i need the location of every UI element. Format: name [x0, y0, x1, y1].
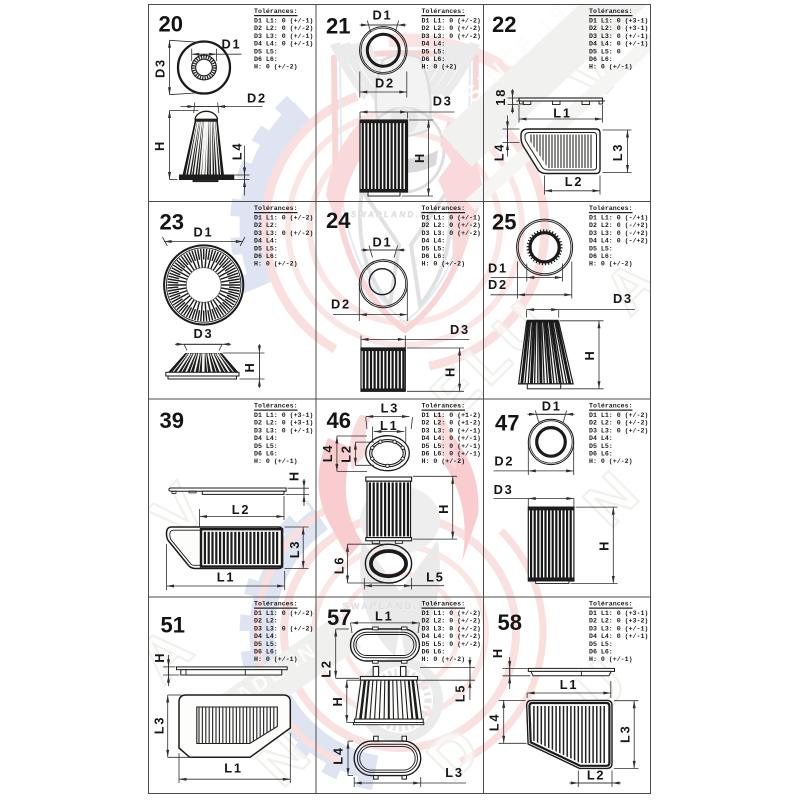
svg-text:D3 L3: 0 (+/-2): D3 L3: 0 (+/-2): [589, 427, 648, 434]
svg-text:D3 L3: 0 (+/-2): D3 L3: 0 (+/-2): [254, 230, 313, 237]
svg-text:D1 L1: 0 (+/-2): D1 L1: 0 (+/-2): [422, 18, 481, 25]
svg-text:D3 L3: 0 (+/-2): D3 L3: 0 (+/-2): [422, 33, 481, 40]
svg-text:D5 L5:: D5 L5:: [254, 443, 278, 450]
svg-text:D5 L5:: D5 L5:: [254, 641, 278, 648]
svg-text:L3: L3: [610, 143, 625, 162]
svg-text:L1: L1: [217, 570, 236, 585]
svg-text:58: 58: [498, 610, 522, 635]
svg-text:L2: L2: [565, 174, 584, 189]
svg-text:Tolérances:: Tolérances:: [589, 403, 633, 410]
svg-text:Tolérances:: Tolérances:: [422, 601, 466, 608]
svg-text:D3 L3: 0 (+/-1): D3 L3: 0 (+/-1): [254, 427, 313, 434]
svg-text:L4: L4: [486, 713, 501, 732]
svg-text:D2 L2: 0 (+3-1): D2 L2: 0 (+3-1): [254, 420, 313, 427]
svg-text:D3: D3: [194, 326, 214, 341]
svg-text:47: 47: [495, 411, 519, 436]
svg-text:D3: D3: [494, 482, 514, 497]
svg-text:D3: D3: [433, 94, 453, 109]
svg-text:L3: L3: [152, 716, 167, 735]
svg-text:Tolérances:: Tolérances:: [254, 8, 298, 15]
svg-text:D5 L5:: D5 L5:: [589, 641, 613, 648]
svg-text:D3 L3: 0 (+/-1): D3 L3: 0 (+/-1): [422, 427, 481, 434]
svg-text:D2: D2: [375, 76, 395, 91]
svg-text:D3 L3: 0 (+/-1): D3 L3: 0 (+/-1): [589, 625, 648, 632]
svg-text:L3: L3: [287, 540, 302, 559]
svg-text:H: 0 (+/-2): H: 0 (+/-2): [422, 261, 466, 268]
svg-text:D4 L4: 0 (+/-2): D4 L4: 0 (+/-2): [422, 633, 481, 640]
svg-text:Tolérances:: Tolérances:: [254, 205, 298, 212]
svg-text:L6: L6: [331, 556, 346, 575]
svg-text:D1 L1: 0 (+3-1): D1 L1: 0 (+3-1): [589, 610, 648, 617]
svg-text:D6 L6:: D6 L6:: [254, 451, 278, 458]
svg-text:L5: L5: [453, 684, 468, 703]
svg-text:H: 0 (+/-2): H: 0 (+/-2): [589, 261, 633, 268]
svg-text:D1: D1: [542, 399, 562, 414]
svg-text:Tolérances:: Tolérances:: [254, 403, 298, 410]
svg-text:D1 L1: 0 (+1-2): D1 L1: 0 (+1-2): [422, 412, 481, 419]
svg-text:D1 L1: 0 (+/-2): D1 L1: 0 (+/-2): [589, 412, 648, 419]
svg-text:H: H: [597, 540, 612, 551]
svg-text:L4: L4: [492, 143, 507, 162]
svg-text:H: H: [152, 652, 167, 663]
svg-text:L1: L1: [553, 106, 572, 121]
svg-text:D5 L5:: D5 L5:: [422, 245, 446, 252]
svg-text:22: 22: [492, 12, 516, 37]
svg-text:L2: L2: [587, 768, 606, 783]
svg-text:L1: L1: [560, 677, 579, 692]
svg-text:D6 L6:: D6 L6:: [422, 56, 446, 63]
svg-text:D3 L3: 0 (-/+2): D3 L3: 0 (-/+2): [589, 230, 648, 237]
svg-text:H: 0 (+2): H: 0 (+2): [422, 64, 458, 71]
svg-text:L4: L4: [230, 142, 245, 161]
svg-text:20: 20: [159, 12, 183, 37]
svg-text:H: 0 (+/-2): H: 0 (+/-2): [422, 458, 466, 465]
svg-text:D1: D1: [373, 8, 393, 23]
svg-text:D6 L6:: D6 L6:: [589, 451, 613, 458]
svg-text:L1: L1: [375, 609, 394, 624]
svg-text:D2 L2: 0 (+3-1): D2 L2: 0 (+3-1): [589, 25, 648, 32]
svg-text:H: 0 (+/-2): H: 0 (+/-2): [254, 64, 298, 71]
svg-text:Tolérances:: Tolérances:: [589, 205, 633, 212]
svg-text:D1 L1: 0 (+/-1): D1 L1: 0 (+/-1): [422, 215, 481, 222]
svg-text:24: 24: [326, 208, 351, 233]
svg-text:D4 L4: 0 (+/-1): D4 L4: 0 (+/-1): [589, 633, 648, 640]
svg-text:D2 L2: 0 (+/-2): D2 L2: 0 (+/-2): [422, 618, 481, 625]
svg-text:D5 L5:: D5 L5:: [254, 48, 278, 55]
svg-text:D2 L2: 0 (+3-2): D2 L2: 0 (+3-2): [589, 618, 648, 625]
svg-text:D2 L2: 0 (+/-2): D2 L2: 0 (+/-2): [254, 25, 313, 32]
svg-text:D4 L4: 0 (+/-1): D4 L4: 0 (+/-1): [422, 435, 481, 442]
svg-text:D1 L1: 0 (+3-1): D1 L1: 0 (+3-1): [254, 412, 313, 419]
svg-text:Tolérances:: Tolérances:: [254, 601, 298, 608]
svg-text:21: 21: [326, 14, 350, 39]
svg-text:D4 L4:: D4 L4:: [254, 435, 278, 442]
svg-text:D1 L1: 0 (-/+1): D1 L1: 0 (-/+1): [589, 215, 648, 222]
svg-text:L4: L4: [320, 444, 335, 463]
svg-text:D4 L4: 0 (+/-1): D4 L4: 0 (+/-1): [254, 41, 313, 48]
svg-text:D3 L3: 0 (+/-2): D3 L3: 0 (+/-2): [422, 625, 481, 632]
svg-text:Tolérances:: Tolérances:: [422, 8, 466, 15]
svg-text:D4 L4:: D4 L4:: [589, 435, 613, 442]
svg-text:L1: L1: [380, 418, 399, 433]
svg-text:D4 L4:: D4 L4:: [422, 41, 446, 48]
svg-text:L1: L1: [224, 761, 243, 776]
svg-text:D6 L6:: D6 L6:: [254, 56, 278, 63]
svg-text:D5 L5: 0 (+/-2): D5 L5: 0 (+/-2): [422, 641, 481, 648]
svg-text:Tolérances:: Tolérances:: [422, 403, 466, 410]
svg-text:D3: D3: [613, 291, 633, 306]
svg-text:D1 L1: 0 (+/-2): D1 L1: 0 (+/-2): [254, 215, 313, 222]
svg-text:D1: D1: [194, 225, 214, 240]
svg-text:D4 L4:: D4 L4:: [254, 633, 278, 640]
svg-text:D6 L6:: D6 L6:: [422, 649, 446, 656]
svg-text:D5 L5:: D5 L5:: [254, 245, 278, 252]
svg-text:H: 0 (+/-2): H: 0 (+/-2): [254, 261, 298, 268]
svg-text:18: 18: [493, 88, 508, 106]
svg-text:L3: L3: [381, 401, 400, 416]
svg-text:D2: D2: [331, 297, 351, 312]
svg-text:H: 0 (+/-2): H: 0 (+/-2): [589, 458, 633, 465]
svg-text:D3: D3: [450, 322, 470, 337]
svg-text:D2: D2: [247, 91, 267, 106]
svg-text:H: H: [443, 366, 458, 377]
svg-text:H: H: [412, 152, 427, 163]
svg-text:D4 L4: 0 (-/+2): D4 L4: 0 (-/+2): [589, 238, 648, 245]
svg-text:D5 L5: 0: D5 L5: 0: [589, 48, 621, 55]
svg-text:H: H: [242, 361, 257, 372]
svg-text:D2: D2: [494, 454, 514, 469]
svg-text:D4 L4:: D4 L4:: [422, 238, 446, 245]
svg-text:L3: L3: [618, 724, 633, 743]
svg-text:H: H: [490, 647, 505, 658]
svg-text:D4 L4: 0 (+/-1): D4 L4: 0 (+/-1): [589, 41, 648, 48]
svg-text:L3: L3: [445, 765, 464, 780]
svg-text:D5 L5:: D5 L5:: [589, 245, 613, 252]
svg-text:H: 0 (+/-1): H: 0 (+/-1): [589, 656, 633, 663]
svg-text:D3 L3: 0 (+/-1): D3 L3: 0 (+/-1): [254, 33, 313, 40]
svg-text:H: 0 (+/-1): H: 0 (+/-1): [589, 64, 633, 71]
svg-text:D6 L6:: D6 L6:: [422, 253, 446, 260]
svg-text:D2 L2: 0 (+/-2): D2 L2: 0 (+/-2): [422, 222, 481, 229]
svg-text:H: H: [287, 470, 302, 481]
svg-text:H: H: [582, 349, 597, 360]
svg-text:L2: L2: [318, 659, 333, 678]
svg-text:23: 23: [160, 210, 184, 235]
svg-text:D1: D1: [488, 261, 508, 276]
svg-text:H: 0 (+/-2): H: 0 (+/-2): [422, 656, 466, 663]
svg-text:D3 L3: 0 (+/-1): D3 L3: 0 (+/-1): [589, 33, 648, 40]
svg-text:46: 46: [327, 408, 351, 433]
svg-text:D3 L3: 0 (+/-2): D3 L3: 0 (+/-2): [422, 230, 481, 237]
svg-text:D2 L2:: D2 L2:: [254, 222, 278, 229]
svg-text:D2 L2: 0 (+/-2): D2 L2: 0 (+/-2): [422, 25, 481, 32]
svg-text:H: H: [330, 695, 345, 706]
svg-text:D2 L2: 0 (+1-2): D2 L2: 0 (+1-2): [422, 420, 481, 427]
svg-text:D2 L2: 0 (-/+2): D2 L2: 0 (-/+2): [589, 222, 648, 229]
svg-text:D2: D2: [488, 277, 508, 292]
svg-text:39: 39: [160, 408, 184, 433]
svg-text:L5: L5: [426, 569, 445, 584]
svg-text:H: 0 (+/-1): H: 0 (+/-1): [254, 656, 298, 663]
svg-text:H: H: [436, 503, 451, 514]
svg-text:D2 L2:: D2 L2:: [254, 618, 278, 625]
svg-text:Tolérances:: Tolérances:: [589, 601, 633, 608]
svg-text:D4 L4:: D4 L4:: [254, 238, 278, 245]
svg-text:D5 L5: 0 (+/-1): D5 L5: 0 (+/-1): [422, 443, 481, 450]
svg-text:D1 L1: 0 (+/-1): D1 L1: 0 (+/-1): [254, 18, 313, 25]
svg-text:D6 L6:: D6 L6:: [589, 253, 613, 260]
svg-text:D1 L1: 0 (+/-2): D1 L1: 0 (+/-2): [254, 610, 313, 617]
svg-text:Tolérances:: Tolérances:: [589, 8, 633, 15]
svg-text:H: 0 (+/-1): H: 0 (+/-1): [254, 458, 298, 465]
svg-text:D6 L6:: D6 L6:: [589, 56, 613, 63]
svg-text:D1: D1: [373, 235, 393, 250]
svg-text:L4: L4: [331, 746, 346, 765]
svg-text:D5 L5:: D5 L5:: [422, 48, 446, 55]
svg-text:D6 L6:: D6 L6:: [254, 253, 278, 260]
svg-text:D6 L6:: D6 L6:: [254, 649, 278, 656]
svg-text:Tolérances:: Tolérances:: [422, 205, 466, 212]
svg-text:D6 L6: 0 (+/-1): D6 L6: 0 (+/-1): [422, 451, 481, 458]
svg-text:57: 57: [327, 605, 351, 630]
svg-text:D2 L2: 0 (+/-2): D2 L2: 0 (+/-2): [589, 420, 648, 427]
svg-text:D1 L1: 0 (+/-2): D1 L1: 0 (+/-2): [422, 610, 481, 617]
svg-text:L2: L2: [339, 444, 354, 463]
svg-text:L2: L2: [232, 502, 251, 517]
svg-text:D6 L6:: D6 L6:: [589, 649, 613, 656]
svg-text:H: H: [152, 140, 167, 151]
svg-text:D1: D1: [222, 37, 242, 52]
svg-text:51: 51: [161, 613, 185, 638]
svg-text:D1 L1: 0 (+3-1): D1 L1: 0 (+3-1): [589, 18, 648, 25]
svg-text:D5 L5:: D5 L5:: [589, 443, 613, 450]
svg-text:25: 25: [492, 210, 516, 235]
svg-text:D3: D3: [153, 58, 168, 78]
svg-text:D3 L3: 0 (+/-2): D3 L3: 0 (+/-2): [254, 625, 313, 632]
